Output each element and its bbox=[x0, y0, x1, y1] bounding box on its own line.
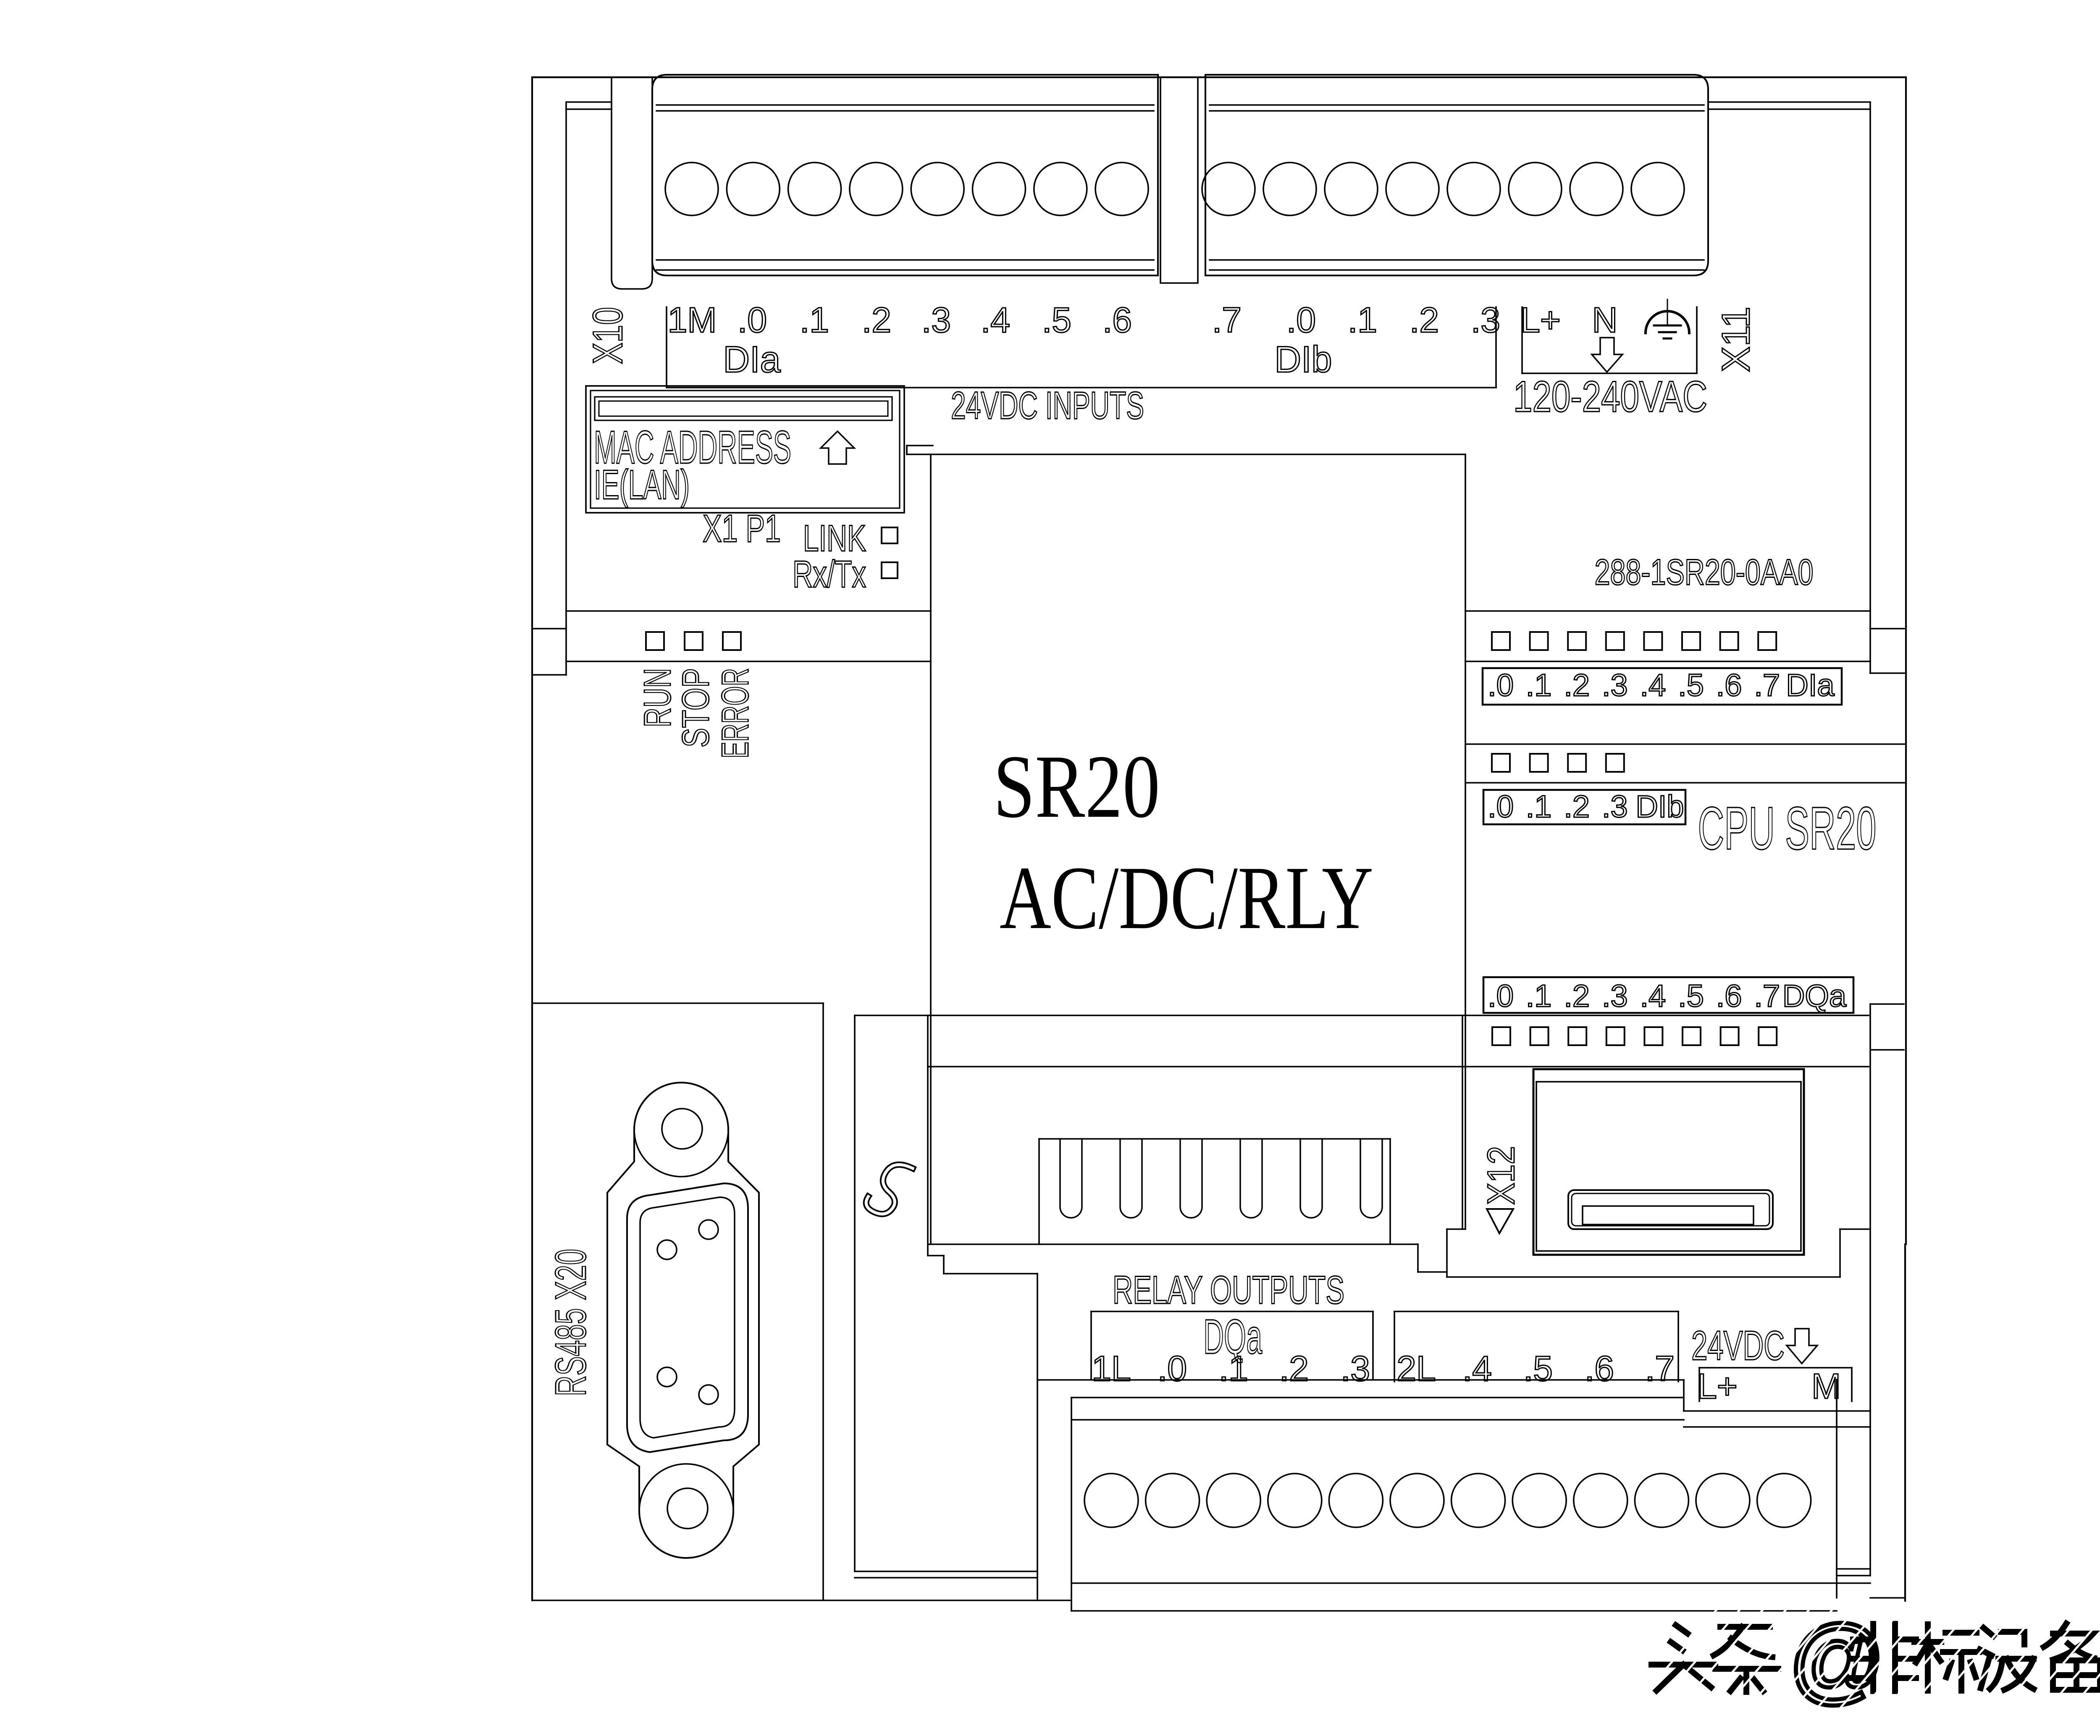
svg-text:.3: .3 bbox=[921, 300, 951, 340]
svg-text:.4: .4 bbox=[1462, 1349, 1492, 1388]
svg-text:.2: .2 bbox=[862, 300, 891, 340]
svg-text:.6: .6 bbox=[1585, 1349, 1614, 1388]
svg-text:L+: L+ bbox=[1520, 300, 1561, 340]
svg-text:.0: .0 bbox=[1488, 668, 1514, 703]
svg-text:120-240VAC: 120-240VAC bbox=[1513, 372, 1707, 421]
svg-text:IE(LAN): IE(LAN) bbox=[594, 462, 690, 508]
svg-text:.2: .2 bbox=[1410, 300, 1439, 340]
svg-text:.0: .0 bbox=[1158, 1349, 1187, 1388]
svg-text:DQa: DQa bbox=[1782, 978, 1847, 1013]
svg-text:.5: .5 bbox=[1678, 668, 1704, 703]
svg-text:.1: .1 bbox=[1526, 668, 1552, 703]
svg-text:DIa: DIa bbox=[1786, 668, 1835, 703]
svg-text:AC/DC/RLY: AC/DC/RLY bbox=[1000, 847, 1373, 948]
svg-text:24VDC: 24VDC bbox=[1691, 1322, 1785, 1369]
svg-text:288-1SR20-0AA0: 288-1SR20-0AA0 bbox=[1595, 552, 1814, 593]
svg-text:.6: .6 bbox=[1716, 668, 1742, 703]
svg-text:RELAY OUTPUTS: RELAY OUTPUTS bbox=[1113, 1268, 1344, 1312]
svg-text:.4: .4 bbox=[1640, 668, 1666, 703]
svg-text:N: N bbox=[1592, 300, 1618, 340]
svg-text:DIa: DIa bbox=[723, 338, 781, 380]
svg-text:.0: .0 bbox=[738, 300, 767, 340]
svg-text:.5: .5 bbox=[1042, 300, 1071, 340]
svg-text:.7: .7 bbox=[1645, 1349, 1675, 1388]
svg-text:X10: X10 bbox=[584, 307, 631, 364]
svg-text:RUN: RUN bbox=[637, 668, 679, 727]
svg-text:DIb: DIb bbox=[1635, 789, 1684, 824]
svg-text:1L: 1L bbox=[1092, 1349, 1131, 1388]
svg-text:.3: .3 bbox=[1602, 668, 1628, 703]
svg-text:CPU SR20: CPU SR20 bbox=[1698, 795, 1877, 862]
svg-text:Rx/Tx: Rx/Tx bbox=[793, 553, 866, 595]
svg-text:.7: .7 bbox=[1754, 668, 1780, 703]
svg-text:.1: .1 bbox=[1348, 300, 1377, 340]
svg-text:LINK: LINK bbox=[803, 517, 866, 559]
svg-text:.3: .3 bbox=[1602, 789, 1628, 824]
svg-text:.3: .3 bbox=[1341, 1349, 1370, 1388]
svg-text:.1: .1 bbox=[1526, 789, 1552, 824]
svg-text:.4: .4 bbox=[1640, 978, 1666, 1013]
svg-text:.1: .1 bbox=[800, 300, 829, 340]
svg-text:SR20: SR20 bbox=[993, 736, 1160, 837]
svg-text:.7: .7 bbox=[1754, 978, 1780, 1013]
svg-text:.4: .4 bbox=[981, 300, 1010, 340]
svg-text:RS485 X20: RS485 X20 bbox=[546, 1249, 595, 1396]
svg-text:1M: 1M bbox=[668, 300, 717, 340]
svg-text:.6: .6 bbox=[1102, 300, 1132, 340]
svg-text:.2: .2 bbox=[1564, 978, 1590, 1013]
svg-text:L+: L+ bbox=[1697, 1366, 1738, 1406]
svg-text:.5: .5 bbox=[1678, 978, 1704, 1013]
svg-text:.0: .0 bbox=[1488, 789, 1514, 824]
svg-text:24VDC INPUTS: 24VDC INPUTS bbox=[951, 384, 1144, 427]
svg-text:2L: 2L bbox=[1396, 1349, 1436, 1388]
svg-text:.2: .2 bbox=[1564, 789, 1590, 824]
svg-text:STOP: STOP bbox=[675, 668, 717, 747]
svg-text:.0: .0 bbox=[1286, 300, 1316, 340]
svg-text:.6: .6 bbox=[1716, 978, 1742, 1013]
svg-text:.3: .3 bbox=[1602, 978, 1628, 1013]
svg-text:DIb: DIb bbox=[1275, 338, 1332, 380]
svg-text:.1: .1 bbox=[1526, 978, 1552, 1013]
svg-text:.2: .2 bbox=[1279, 1349, 1309, 1388]
svg-text:X11: X11 bbox=[1714, 307, 1758, 372]
svg-text:X12: X12 bbox=[1480, 1146, 1522, 1205]
svg-text:.5: .5 bbox=[1523, 1349, 1553, 1388]
svg-text:ERROR: ERROR bbox=[714, 668, 756, 758]
svg-text:.2: .2 bbox=[1564, 668, 1590, 703]
svg-text:.7: .7 bbox=[1212, 300, 1242, 340]
svg-text:X1 P1: X1 P1 bbox=[703, 507, 781, 550]
svg-text:.1: .1 bbox=[1219, 1349, 1248, 1388]
svg-text:.0: .0 bbox=[1488, 978, 1514, 1013]
